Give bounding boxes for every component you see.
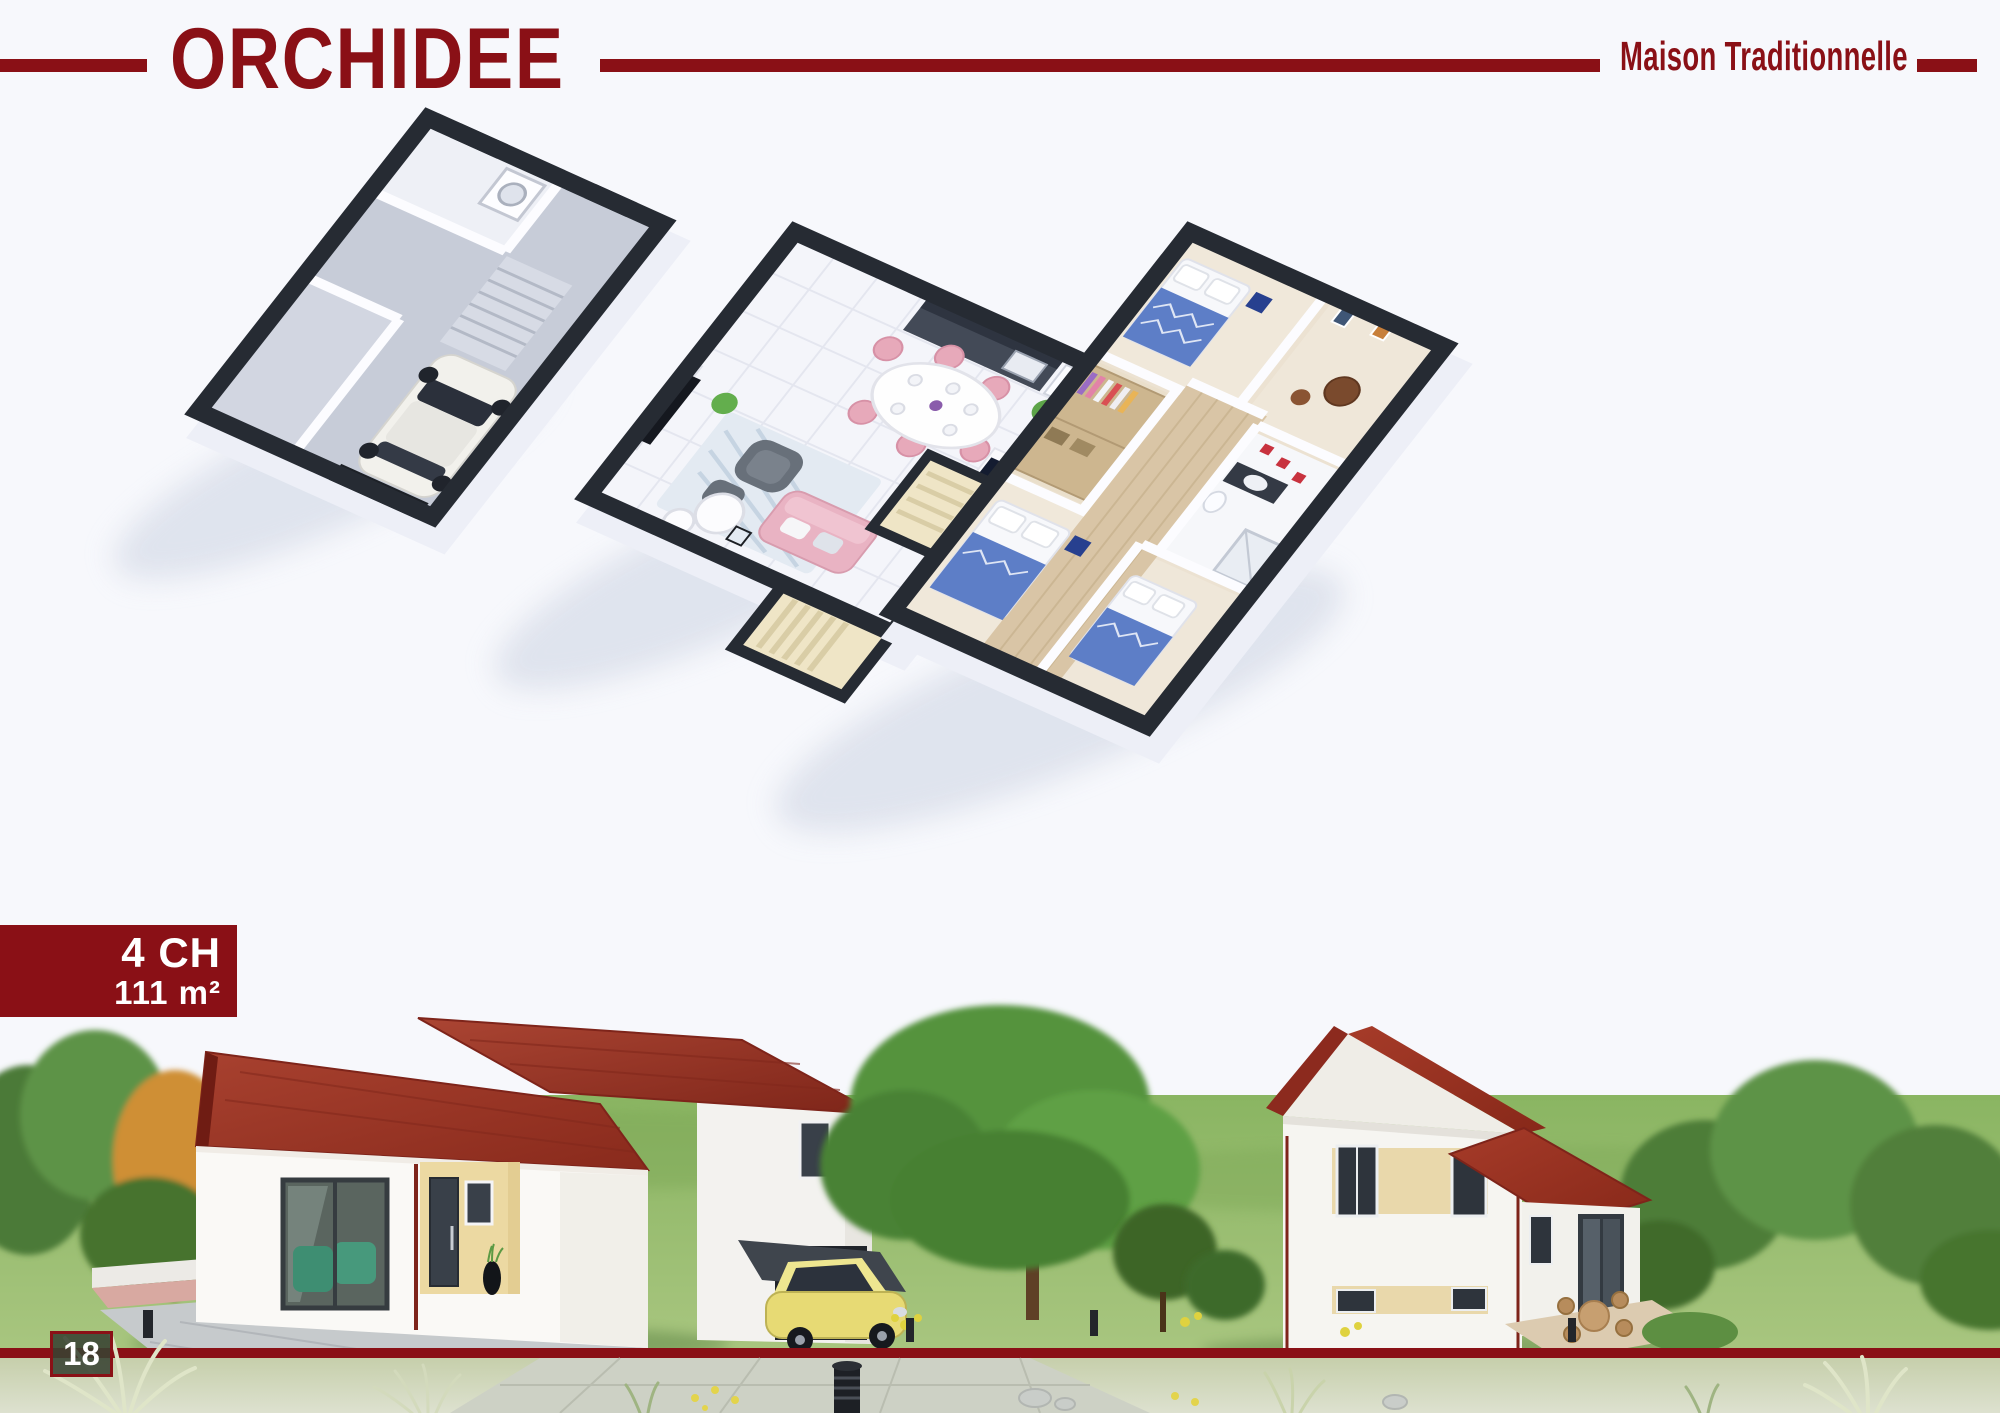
brochure-page: ORCHIDEE Maison Traditionnelle xyxy=(0,0,2000,1413)
basement-window xyxy=(1452,1288,1486,1310)
bedroom-count: 4 CH xyxy=(121,931,221,975)
floor-area: 111 m² xyxy=(114,975,221,1011)
planter-vase xyxy=(483,1261,501,1295)
entrance xyxy=(420,1162,520,1295)
garden-lamp-bollard xyxy=(832,1361,862,1413)
sliding-glass-door xyxy=(283,1180,387,1308)
floor-plans-illustration xyxy=(92,111,1453,881)
front-door xyxy=(430,1178,458,1286)
left-house-illustration xyxy=(92,1018,907,1398)
green-sofa xyxy=(334,1242,376,1284)
spec-badge: 4 CH 111 m² xyxy=(0,925,237,1017)
hedge xyxy=(1642,1312,1738,1352)
exterior-render-scene xyxy=(0,1005,2000,1413)
bush xyxy=(1185,1250,1265,1320)
basement-window xyxy=(1337,1290,1375,1312)
entry-window xyxy=(466,1182,492,1224)
page-artwork xyxy=(0,0,2000,1413)
extension-window xyxy=(1530,1216,1552,1264)
page-number: 18 xyxy=(63,1335,100,1373)
page-number-box: 18 xyxy=(50,1331,113,1377)
green-sofa xyxy=(293,1246,333,1292)
